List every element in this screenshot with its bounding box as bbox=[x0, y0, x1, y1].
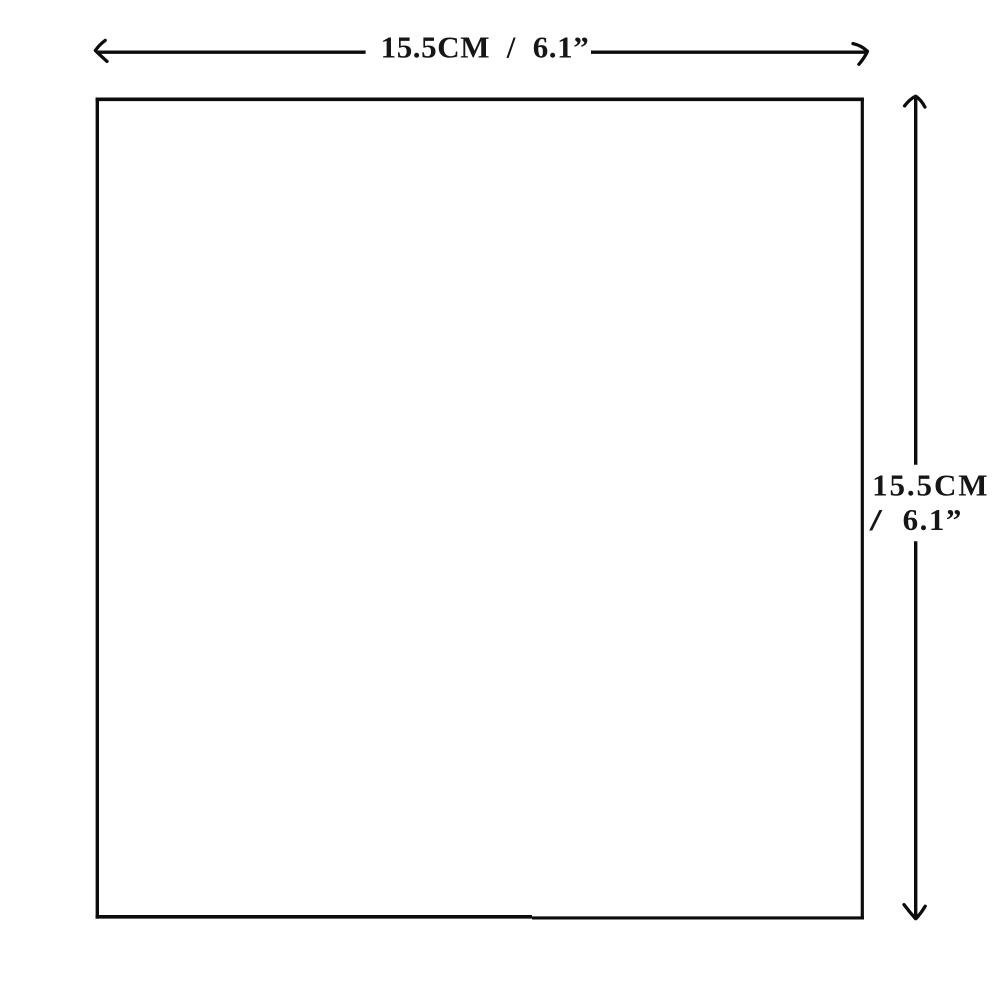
svg-text:15.5CM / 6.1”: 15.5CM / 6.1” bbox=[381, 30, 590, 65]
svg-text:/ 6.1”: / 6.1” bbox=[868, 502, 963, 537]
svg-text:15.5CM: 15.5CM bbox=[872, 468, 989, 503]
